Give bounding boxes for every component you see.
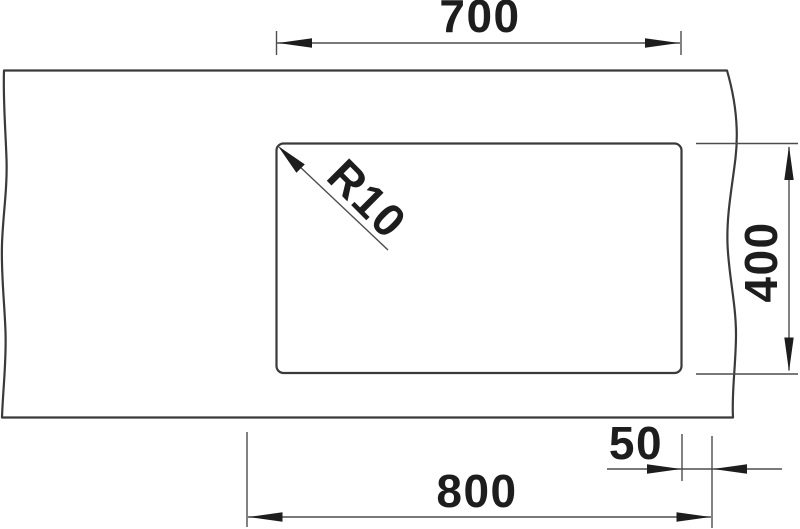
arrowhead-down-icon xyxy=(784,338,793,372)
arrowhead-left-icon xyxy=(713,464,747,473)
dimension-edge-offset: 50 xyxy=(607,417,782,481)
arrowhead-right-icon xyxy=(677,512,711,521)
dimension-label-bowl-depth: 400 xyxy=(735,221,787,302)
dimension-label-edge-offset: 50 xyxy=(609,417,663,469)
arrowhead-left-icon xyxy=(249,512,283,521)
arrowhead-up-icon xyxy=(784,146,793,180)
dimension-label-corner-radius: R10 xyxy=(318,149,418,249)
radius-callout: R10 xyxy=(278,146,417,250)
dimension-label-overall-width: 800 xyxy=(436,465,517,517)
dimension-bowl-width: 700 xyxy=(277,0,682,55)
leader-arrowhead-icon xyxy=(278,146,305,173)
dimension-bowl-depth: 400 xyxy=(696,144,798,375)
arrowhead-left-icon xyxy=(278,38,312,47)
dimension-label-bowl-width: 700 xyxy=(439,0,520,42)
technical-drawing-canvas: 700 R10 400 50 xyxy=(0,0,800,529)
countertop-outline xyxy=(2,71,737,418)
sink-dimension-drawing: 700 R10 400 50 xyxy=(0,0,800,529)
arrowhead-right-icon xyxy=(645,38,679,47)
